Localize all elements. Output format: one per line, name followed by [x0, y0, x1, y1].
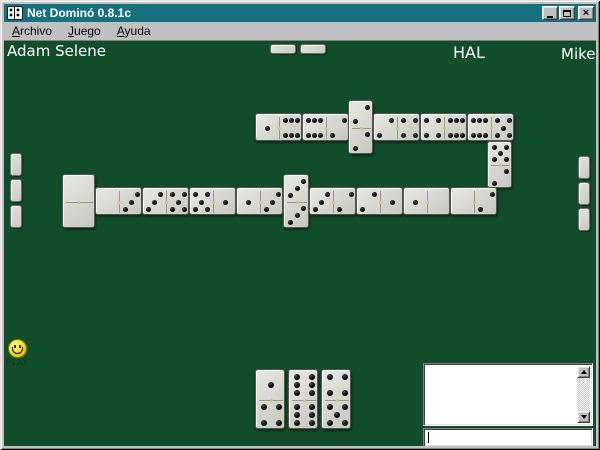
domino-half	[303, 114, 327, 142]
menu-bar: ArchivoJuegoAyuda	[4, 22, 596, 40]
pip	[377, 133, 382, 138]
pip	[301, 179, 306, 184]
tile-center-accent	[165, 201, 168, 204]
window-title: Net Dominó 0.8.1c	[27, 6, 541, 20]
tile-center-accent	[426, 201, 429, 204]
pip	[205, 192, 210, 197]
pip	[492, 157, 497, 162]
menu-item-ayuda[interactable]: Ayuda	[109, 23, 159, 39]
pip	[246, 200, 251, 205]
domino-half	[96, 188, 120, 216]
domino-half	[256, 400, 286, 430]
player-name-top: HAL	[453, 43, 485, 62]
pip	[261, 404, 267, 410]
pip	[477, 133, 482, 138]
pip	[507, 118, 512, 123]
pip	[276, 404, 282, 410]
pip	[424, 133, 429, 138]
tile-center-accent	[278, 127, 281, 130]
hidden-tile-left	[10, 179, 22, 202]
pip	[312, 133, 317, 138]
tile-center-accent	[499, 164, 502, 167]
tile-center-accent	[490, 127, 493, 130]
pip	[261, 420, 267, 426]
pip	[454, 133, 459, 138]
tile-center-accent	[332, 201, 335, 204]
pip	[507, 133, 512, 138]
domino-tile	[467, 113, 514, 141]
tile-center-accent	[325, 127, 328, 130]
pip	[401, 118, 406, 123]
pip	[327, 390, 333, 396]
pip	[199, 200, 204, 205]
pip	[342, 420, 348, 426]
pip	[448, 133, 453, 138]
tile-center-accent	[259, 201, 262, 204]
pip	[401, 133, 406, 138]
pip	[460, 133, 465, 138]
pip	[289, 133, 294, 138]
tile-center-accent	[78, 201, 81, 204]
menu-item-archivo[interactable]: Archivo	[4, 23, 60, 39]
domino-half	[421, 114, 445, 142]
pip	[288, 220, 293, 225]
pip	[158, 192, 163, 197]
pip	[337, 207, 342, 212]
hidden-tile-right	[578, 182, 590, 205]
pip	[483, 118, 488, 123]
pip	[301, 206, 306, 211]
domino-tile	[403, 187, 450, 215]
domino-half	[284, 175, 310, 202]
domino-tile	[487, 141, 512, 188]
menu-item-juego[interactable]: Juego	[60, 23, 109, 39]
pip	[193, 192, 198, 197]
pip	[295, 213, 300, 218]
pip	[182, 192, 187, 197]
pip	[413, 200, 418, 205]
domino-half	[428, 188, 452, 216]
domino-half	[256, 370, 286, 400]
domino-half	[167, 188, 191, 216]
pip	[448, 118, 453, 123]
chat-log	[423, 363, 593, 426]
pip	[306, 118, 311, 123]
pip	[318, 133, 323, 138]
pip	[319, 200, 324, 205]
pip	[294, 412, 300, 418]
domino-half	[488, 142, 513, 166]
domino-half	[120, 188, 144, 216]
pip	[504, 145, 509, 150]
pip	[342, 404, 348, 410]
domino-half	[349, 128, 374, 155]
title-bar: Net Dominó 0.8.1c ×	[4, 4, 596, 22]
domino-tile	[309, 187, 356, 215]
domino-half	[357, 188, 381, 216]
pip	[283, 133, 288, 138]
pip	[309, 420, 315, 426]
domino-half	[284, 202, 310, 229]
domino-tile	[348, 100, 373, 154]
smiley-mouth	[12, 347, 23, 354]
pip	[477, 118, 482, 123]
domino-half	[404, 188, 428, 216]
domino-tile	[236, 187, 283, 215]
domino-half	[349, 101, 374, 128]
close-button[interactable]: ×	[578, 6, 594, 20]
pip	[460, 118, 465, 123]
pip	[436, 133, 441, 138]
pip	[490, 192, 495, 197]
domino-half	[398, 114, 422, 142]
tile-center-accent	[118, 201, 121, 204]
domino-half	[280, 114, 304, 142]
domino-tile	[255, 113, 302, 141]
pip	[504, 169, 509, 174]
pip	[436, 118, 441, 123]
domino-half	[63, 202, 96, 229]
minimize-icon	[547, 16, 553, 18]
pip	[360, 207, 365, 212]
domino-half	[289, 400, 319, 430]
pip	[327, 404, 333, 410]
domino-half	[190, 188, 214, 216]
pip	[330, 133, 335, 138]
pip	[309, 374, 315, 380]
pip	[309, 404, 315, 410]
tile-center-accent	[270, 399, 273, 402]
text-caret	[428, 432, 429, 443]
domino-tile	[95, 187, 142, 215]
tile-center-accent	[212, 201, 215, 204]
domino-tile	[450, 187, 497, 215]
pip	[492, 145, 497, 150]
pip	[365, 105, 370, 110]
pip	[471, 133, 476, 138]
scroll-down-button[interactable]	[577, 411, 590, 423]
domino-half	[322, 370, 352, 400]
pip	[495, 133, 500, 138]
pip	[276, 192, 281, 197]
pip	[295, 186, 300, 191]
domino-half	[451, 188, 475, 216]
pip	[498, 151, 503, 156]
pip	[353, 119, 358, 124]
domino-half	[475, 188, 499, 216]
pip	[283, 118, 288, 123]
tile-center-accent	[473, 201, 476, 204]
pip	[309, 390, 315, 396]
tile-center-accent	[443, 127, 446, 130]
turn-indicator-label: PLAY	[6, 358, 29, 367]
domino-tile	[142, 187, 189, 215]
pip	[309, 382, 315, 388]
domino-tile	[302, 113, 349, 141]
pip	[265, 126, 270, 131]
pip	[294, 404, 300, 410]
tile-center-accent	[336, 399, 339, 402]
player-name-right: Mike	[561, 45, 596, 63]
domino-tile-hand[interactable]	[255, 369, 285, 429]
minimize-button[interactable]	[542, 6, 558, 20]
pip	[170, 192, 175, 197]
pip	[312, 118, 317, 123]
arrow-up-icon	[581, 370, 587, 374]
maximize-button[interactable]	[559, 6, 575, 20]
pip	[390, 200, 395, 205]
pip	[288, 193, 293, 198]
pip	[389, 118, 394, 123]
domino-half	[374, 114, 398, 142]
pip	[313, 207, 318, 212]
domino-half	[214, 188, 238, 216]
pip	[483, 133, 488, 138]
game-table: Adam Selene HAL Mike PLAY	[4, 40, 596, 446]
arrow-down-icon	[581, 415, 587, 419]
domino-half	[143, 188, 167, 216]
domino-half	[468, 114, 492, 142]
pip	[327, 374, 333, 380]
tile-center-accent	[396, 127, 399, 130]
pip	[349, 192, 354, 197]
domino-half	[261, 188, 285, 216]
hidden-tile-top	[300, 44, 326, 54]
pip	[327, 420, 333, 426]
domino-half	[445, 114, 469, 142]
pip	[454, 118, 459, 123]
domino-tile	[373, 113, 420, 141]
domino-half	[334, 188, 358, 216]
pip	[294, 420, 300, 426]
pip	[295, 118, 300, 123]
close-icon: ×	[583, 8, 589, 18]
domino-half	[289, 370, 319, 400]
chat-input[interactable]	[423, 428, 593, 446]
pip	[372, 192, 377, 197]
pip	[492, 181, 497, 186]
pip	[170, 207, 175, 212]
pip	[478, 207, 483, 212]
pip	[276, 420, 282, 426]
player-name-left: Adam Selene	[7, 42, 106, 60]
domino-half	[322, 400, 352, 430]
domino-half	[63, 175, 96, 202]
tile-center-accent	[360, 127, 363, 130]
pip	[129, 200, 134, 205]
hidden-tile-left	[10, 153, 22, 176]
hidden-tile-right	[578, 156, 590, 179]
tile-center-accent	[296, 201, 299, 204]
pip	[471, 118, 476, 123]
pip	[205, 207, 210, 212]
hidden-tile-right	[578, 208, 590, 231]
domino-tile	[420, 113, 467, 141]
pip	[413, 118, 418, 123]
pip	[309, 412, 315, 418]
domino-half	[327, 114, 351, 142]
pip	[325, 192, 330, 197]
pip	[146, 207, 151, 212]
pip	[365, 132, 370, 137]
pip	[504, 157, 509, 162]
tile-center-accent	[303, 399, 306, 402]
pip	[223, 200, 228, 205]
pip	[294, 382, 300, 388]
domino-tile-hand[interactable]	[288, 369, 318, 429]
pip	[294, 374, 300, 380]
pip	[342, 118, 347, 123]
pip	[182, 207, 187, 212]
pip	[495, 118, 500, 123]
pip	[334, 412, 340, 418]
domino-tile	[189, 187, 236, 215]
app-window: Net Dominó 0.8.1c × ArchivoJuegoAyuda Ad…	[0, 0, 600, 450]
domino-half	[256, 114, 280, 142]
domino-tile	[283, 174, 309, 228]
domino-half	[488, 166, 513, 190]
pip	[342, 390, 348, 396]
pip	[424, 118, 429, 123]
domino-tile	[356, 187, 403, 215]
pip	[289, 118, 294, 123]
tile-center-accent	[379, 201, 382, 204]
pip	[123, 207, 128, 212]
pip	[353, 146, 358, 151]
pip	[306, 133, 311, 138]
chat-scrollbar[interactable]	[577, 366, 590, 423]
pip	[270, 200, 275, 205]
pip	[264, 207, 269, 212]
app-domino-icon	[7, 6, 23, 20]
pip	[295, 133, 300, 138]
pip	[294, 390, 300, 396]
domino-half	[310, 188, 334, 216]
pip	[268, 382, 274, 388]
domino-half	[492, 114, 516, 142]
turn-indicator-icon	[8, 339, 27, 358]
domino-tile-hand[interactable]	[321, 369, 351, 429]
pip	[176, 200, 181, 205]
pip	[135, 192, 140, 197]
pip	[193, 207, 198, 212]
hidden-tile-left	[10, 205, 22, 228]
domino-tile	[62, 174, 95, 228]
scroll-up-button[interactable]	[577, 366, 590, 378]
domino-half	[237, 188, 261, 216]
pip	[342, 374, 348, 380]
domino-half	[381, 188, 405, 216]
pip	[413, 133, 418, 138]
pip	[501, 126, 506, 131]
pip	[152, 200, 157, 205]
maximize-icon	[563, 10, 571, 17]
pip	[318, 118, 323, 123]
hidden-tile-top	[270, 44, 296, 54]
